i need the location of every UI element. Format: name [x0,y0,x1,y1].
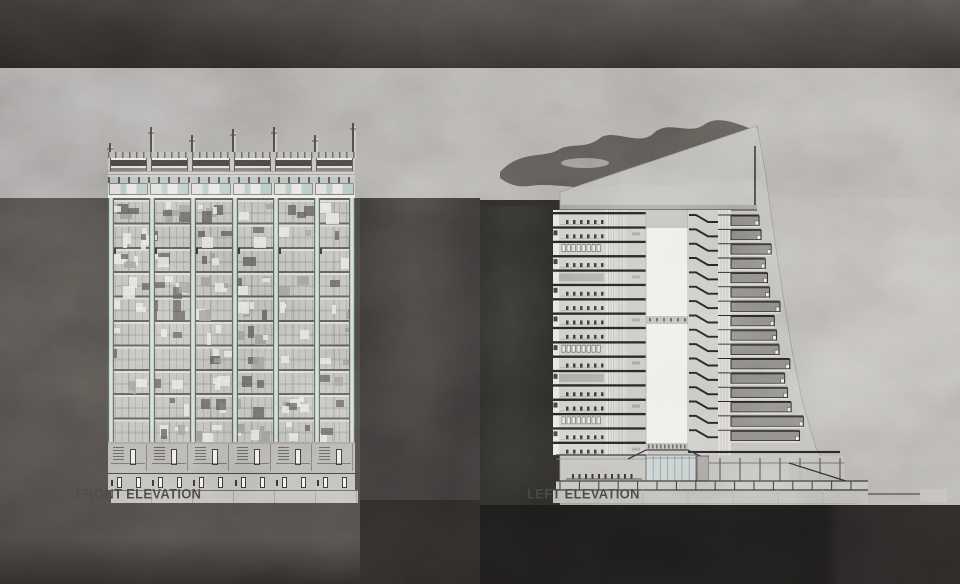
facade-panel [286,422,292,427]
facade-panel [198,231,205,237]
shelf-hatch [582,345,585,352]
terrace-slab [731,403,791,413]
facade-base-level [108,442,355,473]
facade-panel [216,325,221,333]
facade-panel [254,237,267,248]
person-figure [624,474,626,479]
facade-panel [330,280,340,287]
furniture-mark [587,435,590,439]
terrace-slab [731,302,780,312]
facade-panel [288,205,296,215]
furniture-mark [566,407,569,411]
facade-panel [242,376,252,387]
mechanical-band [559,374,604,382]
terrace-gap [731,240,761,242]
facade-panel [129,277,137,289]
facade-bay-segment [275,158,312,171]
facade-panel [253,227,264,233]
furniture-mark [573,392,576,396]
furniture-mark [594,450,597,454]
facade-panel [184,404,189,416]
facade-bay-segment [192,158,229,171]
furniture-mark [580,435,583,439]
entry-pier [697,456,709,481]
person-figure [585,474,587,479]
terrace-slab [731,360,790,370]
terrace-end-notch [767,250,771,254]
entry-door [260,477,265,488]
furniture-mark [587,234,590,238]
terrace-end-notch [775,350,779,354]
facade-panel [282,304,286,309]
furniture-mark [573,320,576,324]
base-band-tick [680,445,682,449]
furniture-mark [601,220,604,224]
facade-panel [163,210,173,216]
terrace-end-notch [755,221,759,225]
facade-panel [326,213,339,224]
atrium-bridge [646,316,688,324]
base-band-tick [652,445,654,449]
facade-panel [238,286,248,296]
edge-square [554,230,558,235]
facade-bay-segment [150,183,189,195]
terrace-slab [731,388,788,398]
floor-slab [553,241,648,243]
furniture-mark [566,364,569,368]
light-sliver [561,158,609,168]
terrace-end-notch [799,422,803,426]
terrace-gap [731,341,777,343]
shelf-hatch [577,417,580,424]
base-stair-mark [113,447,124,460]
facade-panel [201,277,210,287]
facade-panel [202,211,211,223]
column-strip-mark [632,362,640,365]
person-figure [579,474,581,479]
furniture-mark [587,335,590,339]
facade-panel [281,356,290,363]
shelf-hatch [592,245,595,252]
terrace-slab [731,417,803,427]
floor-slab [553,442,648,444]
floor-slab [553,226,648,228]
facade-panel [170,398,175,403]
entry-door [342,477,347,488]
edge-square [554,259,558,264]
facade-bay-segment [316,158,353,171]
base-stair-mark [154,447,165,460]
base-band-tick [664,445,666,449]
furniture-mark [566,292,569,296]
facade-panel [155,379,161,389]
terrace-end-notch [773,336,777,340]
base-bay-divider [146,444,147,471]
facade-panel [202,237,214,248]
person-figure [605,474,607,479]
facade-panel [166,202,171,209]
atrium-void [646,324,688,443]
front-elevation-label: FRONT ELEVATION [76,485,201,501]
furniture-mark [587,364,590,368]
shelf-hatch [597,245,600,252]
floor-slab [553,413,648,415]
facade-panel [341,258,349,269]
shelf-hatch [567,245,570,252]
floor-slab [553,384,648,386]
column-strip-mark [632,232,640,235]
facade-panel [250,302,254,309]
furniture-mark [573,220,576,224]
facade-panel [319,375,330,382]
facade-panel [336,400,343,407]
base-floor-line [152,463,186,464]
base-stair-mark [278,447,289,460]
facade-panel [305,230,312,236]
base-bay-divider [270,444,271,471]
facade-panel [262,310,267,320]
facade-bay-segment [151,158,188,171]
facade-panel [173,311,184,320]
furniture-mark [587,220,590,224]
bridge-figure [649,318,651,322]
facade-panel [165,276,173,282]
terrace-slab [731,288,770,298]
furniture-mark [566,335,569,339]
shelf-hatch [577,345,580,352]
facade-panel [259,431,270,442]
shelf-hatch [597,417,600,424]
facade-panel [113,300,120,309]
furniture-mark [566,320,569,324]
figure-mark [276,480,278,486]
bridge-figure [663,318,665,322]
terrace-end-notch [787,408,791,412]
furniture-mark [573,292,576,296]
furniture-mark [601,234,604,238]
shelf-hatch [567,417,570,424]
terrace-end-notch [766,293,770,297]
facade-panel [243,257,256,266]
furniture-mark [594,335,597,339]
terrace-end-notch [796,436,800,440]
furniture-mark [601,306,604,310]
facade-panel [178,425,184,435]
furniture-mark [594,320,597,324]
furniture-mark [587,306,590,310]
base-bay-divider [187,444,188,471]
terrace-end-notch [776,307,780,311]
facade-panel [141,234,146,240]
furniture-mark [580,450,583,454]
facade-panel [113,328,120,334]
atrium-header [646,210,688,228]
terrace-slab [731,245,771,255]
base-band-tick [684,445,686,449]
furniture-mark [601,263,604,267]
facade-bay-segment [110,158,147,171]
furniture-mark [580,392,583,396]
furniture-mark [566,234,569,238]
facade-panel [213,207,217,213]
facade-panel [257,380,264,388]
shelf-hatch [572,345,575,352]
floor-slab [553,212,648,214]
facade-panel [202,256,207,264]
entry-door [301,477,306,488]
furniture-mark [594,364,597,368]
facade-panel [198,205,203,210]
edge-square [554,403,558,408]
facade-panel [305,425,311,431]
terrace-gap [731,298,770,300]
furniture-mark [594,263,597,267]
facade-panel [161,329,167,337]
furniture-mark [594,292,597,296]
bridge-figure [656,318,658,322]
facade-panel [282,406,289,413]
shelf-hatch [597,345,600,352]
terrace-gap [731,369,790,371]
facade-panel [300,330,309,339]
terrace-end-notch [784,393,788,397]
bridge-figure [684,318,686,322]
terrace-gap [731,441,800,443]
column-strip-mark [632,318,640,321]
facade-panel [136,303,143,310]
terrace-end-notch [770,321,774,325]
facade-panel [199,310,211,321]
plinth-extension [868,494,928,503]
facade-panel [213,349,219,356]
core-strip [617,210,624,455]
shelf-hatch [592,417,595,424]
furniture-mark [587,450,590,454]
furniture-mark [594,407,597,411]
edge-square [554,374,558,379]
furniture-mark [601,392,604,396]
terrace-slab [731,316,774,326]
person-figure [618,474,620,479]
column-strip-mark [632,448,640,451]
furniture-mark [587,263,590,267]
entry-door [218,477,223,488]
facade-teal-mullion [314,198,320,442]
facade-panel [201,399,211,410]
shelf-hatch [572,417,575,424]
furniture-mark [601,407,604,411]
terrace-slab [731,331,777,341]
facade-panel [158,257,170,267]
shelf-hatch [587,245,590,252]
furniture-mark [566,306,569,310]
facade-panel [263,335,268,340]
facade-bay-segment [274,183,313,195]
furniture-mark [594,220,597,224]
terrace-gap [731,412,791,414]
facade-panel [203,433,213,442]
base-bay-divider [352,444,353,471]
front-elevation-drawing [108,126,355,503]
furniture-mark [573,407,576,411]
base-stair-mark [195,447,206,460]
edge-square [554,431,558,436]
figure-mark [235,480,237,486]
terrace-gap [731,398,788,400]
base-floor-line [317,463,351,464]
facade-panel [319,358,331,364]
facade-teal-mullion [149,198,155,442]
facade-panel [212,425,222,430]
floor-slab [553,370,648,372]
shelf-hatch [582,417,585,424]
floor-slab [553,341,648,343]
shelf-hatch [562,417,565,424]
shelf-hatch [567,345,570,352]
column-strip [627,210,645,455]
furniture-mark [601,435,604,439]
floor-slab [553,399,648,401]
shelf-hatch [577,245,580,252]
facade-bay-segment [191,183,230,195]
floor-slab [553,255,648,257]
furniture-mark [580,320,583,324]
furniture-mark [587,407,590,411]
facade-cap-louvers [108,158,355,171]
terrace-core-strip [718,210,731,455]
facade-bay-segment [234,158,271,171]
base-band-tick [656,445,658,449]
facade-bay-segment [315,183,354,195]
facade-panel [321,428,333,434]
floor-slab [553,427,648,429]
facade-panel [335,231,339,240]
facade-teal-mullion [108,198,114,442]
furniture-mark [573,335,576,339]
base-band-tick [672,445,674,449]
facade-panel [213,378,220,384]
figure-mark [317,480,319,486]
facade-panel [253,357,264,368]
facade-teal-mullion [273,198,279,442]
facade-panel [214,358,221,363]
furniture-mark [580,407,583,411]
atrium-void [646,228,688,316]
furniture-mark [573,364,576,368]
terrace-end-notch [757,235,761,239]
edge-square [554,316,558,321]
base-stair-mark [237,447,248,460]
base-band-tick [676,445,678,449]
furniture-mark [601,364,604,368]
furniture-mark [601,335,604,339]
terrace-end-notch [761,264,765,268]
facade-panel [332,305,336,314]
terrace-gap [731,355,779,357]
furniture-mark [580,306,583,310]
terrace-slab [731,431,800,441]
facade-panel [216,399,227,410]
shelf-hatch [587,345,590,352]
mechanical-band [559,273,604,281]
terrace-gap [731,226,759,228]
facade-panel [279,286,290,295]
furniture-mark [594,392,597,396]
furniture-mark [580,364,583,368]
furniture-mark [601,292,604,296]
column-strip-mark [632,275,640,278]
shelf-hatch [562,245,565,252]
base-floor-line [111,463,145,464]
facade-bay-segment [233,183,272,195]
facade-panel [173,332,182,338]
facade-teal-mullion [232,198,238,442]
shelf-hatch [592,345,595,352]
facade-bay-segment [109,183,148,195]
facade-panel [121,254,129,259]
terrace-gap [731,427,803,429]
floor-slab [553,269,648,271]
facade-panel [299,397,304,402]
facade-panel [124,262,137,269]
furniture-mark [573,435,576,439]
furniture-mark [594,234,597,238]
base-floor-line [276,463,310,464]
facade-panel [212,258,219,265]
facade-panel [248,326,254,338]
shelf-hatch [582,245,585,252]
shelf-hatch [562,345,565,352]
furniture-mark [580,292,583,296]
facade-panel [300,404,308,413]
furniture-mark [594,306,597,310]
facade-panel [289,433,299,441]
plinth-pad [920,489,947,502]
person-figure [598,474,600,479]
terrace-slab [731,374,785,384]
floor-slab [553,356,648,358]
terrace-slab [731,345,779,355]
furniture-mark [566,220,569,224]
base-band-tick [648,445,650,449]
terrace-slab [731,273,768,283]
shelf-hatch [572,245,575,252]
furniture-mark [573,234,576,238]
furniture-mark [580,335,583,339]
terrace-slab [731,259,765,269]
edge-square [554,345,558,350]
column-strip-mark [632,405,640,408]
base-stair-mark [319,447,330,460]
facade-panel [239,212,249,220]
roof-slab-band [560,205,757,210]
person-figure [611,474,613,479]
entry-door [241,477,246,488]
furniture-mark [566,263,569,267]
facade-upper-panels [108,183,355,195]
base-band-tick [668,445,670,449]
facade-panel [334,377,343,387]
terrace-gap [731,384,785,386]
base-bay-divider [311,444,312,471]
furniture-mark [566,435,569,439]
furniture-mark [573,450,576,454]
furniture-mark [587,292,590,296]
left-elevation-label: LEFT ELEVATION [527,485,640,501]
furniture-mark [601,450,604,454]
person-figure [631,474,633,479]
furniture-mark [566,450,569,454]
